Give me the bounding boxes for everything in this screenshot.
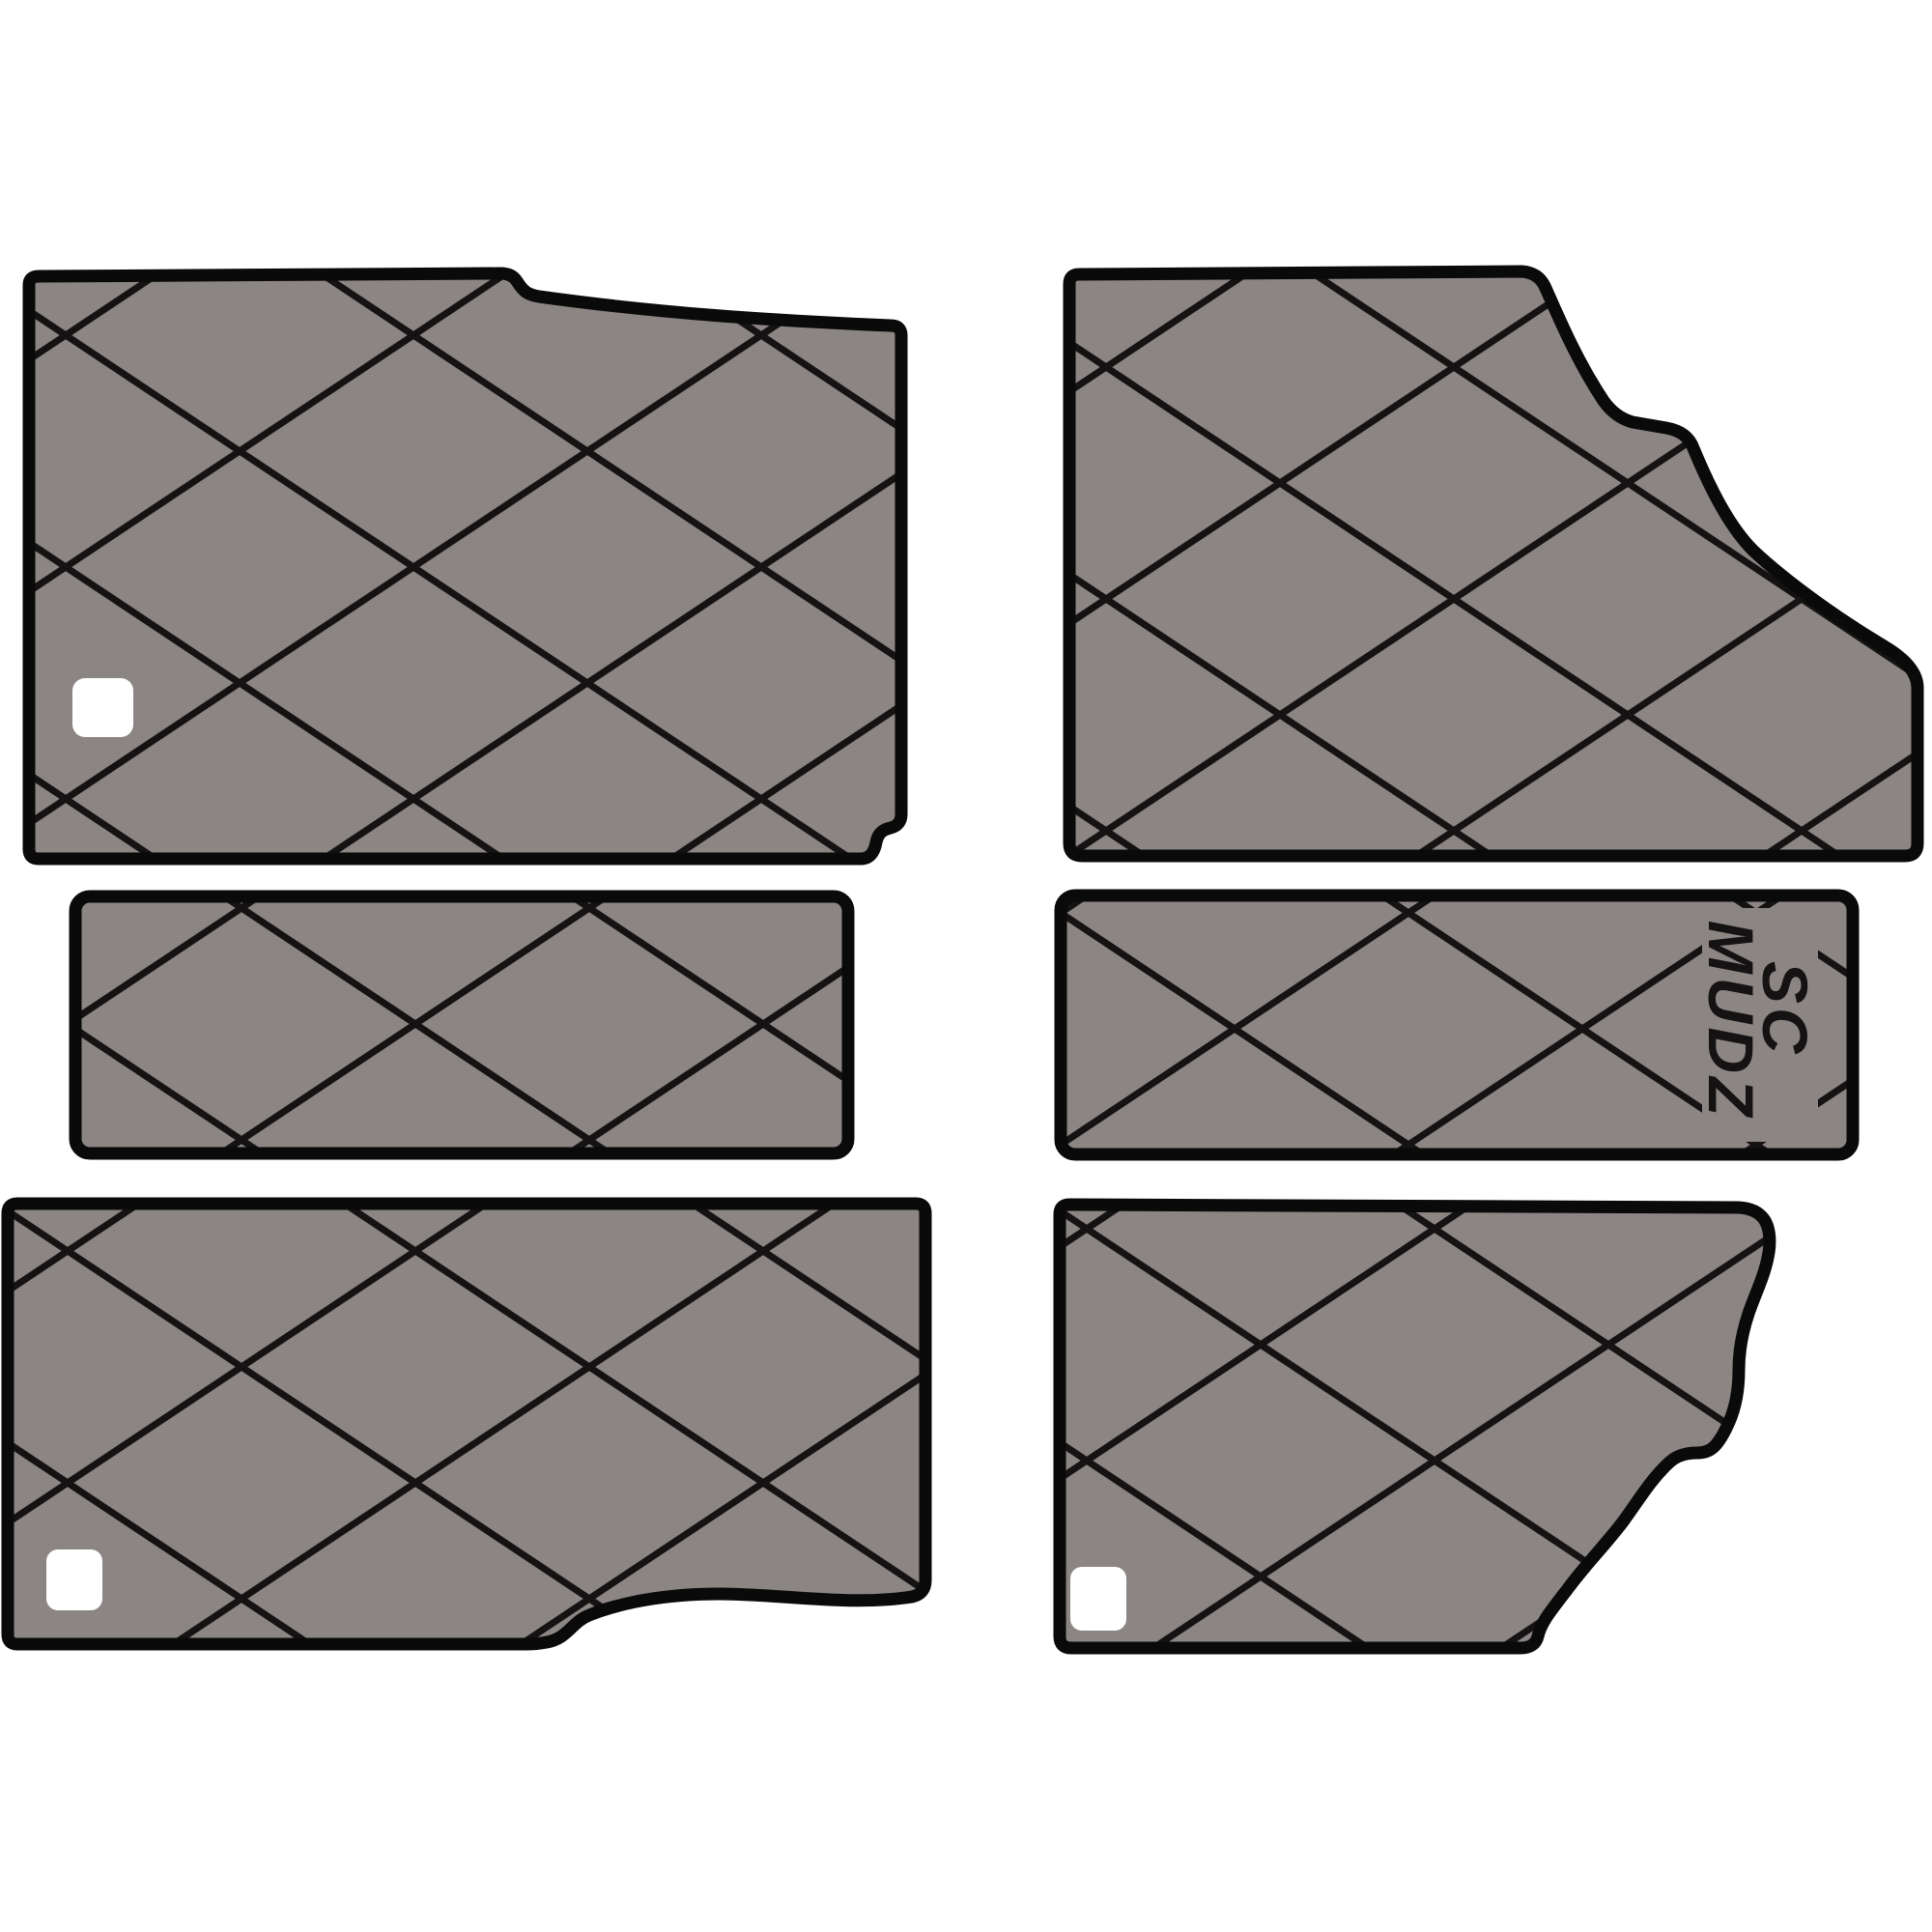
right-strip-mat: SC MUDZ (1061, 895, 1853, 1154)
rear-left-mat (8, 1204, 925, 1644)
left-strip-mat-stitching (75, 896, 848, 1153)
rear-left-heel-pad (46, 1549, 102, 1610)
floor-mat-set-figure: SC MUDZ (0, 0, 1932, 1932)
front-right-mat (1069, 271, 1918, 856)
rear-right-mat-stitching (1060, 1205, 1770, 1648)
rear-right-mat (1060, 1205, 1770, 1648)
front-left-heel-pad (72, 678, 133, 737)
floor-mat-set-page: SC MUDZ (0, 0, 1932, 1932)
front-right-mat-stitching (1069, 271, 1918, 856)
rear-right-heel-pad (1070, 1567, 1126, 1631)
brand-logo-line2: MUDZ (1695, 921, 1767, 1121)
front-left-mat (29, 273, 901, 859)
left-strip-mat (75, 896, 848, 1153)
rear-left-mat-stitching (8, 1204, 925, 1644)
front-left-mat-stitching (29, 273, 901, 859)
